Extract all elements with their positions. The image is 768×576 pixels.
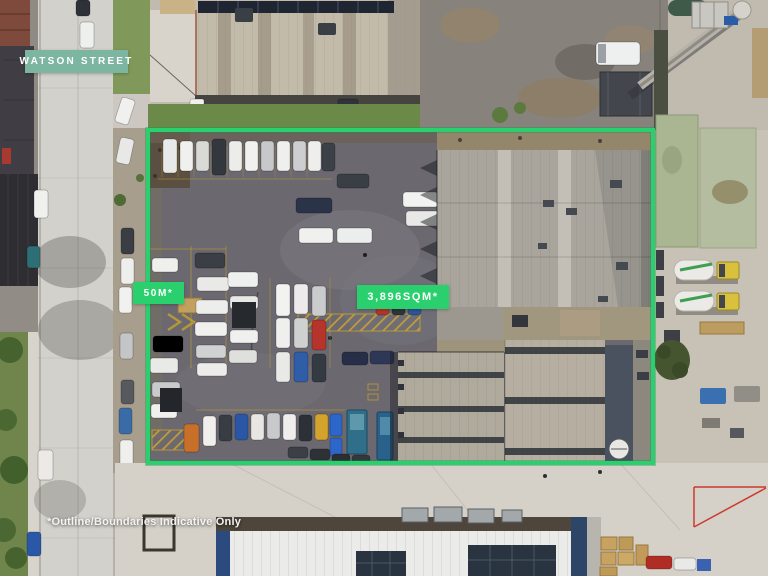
watson-street-road [34,0,122,576]
aerial-photo-canvas: WATSON STREET 50M* 3,896SQM* *Outline/Bo… [0,0,768,576]
street-name-badge: WATSON STREET [25,50,128,73]
concrete-mixer-truck [674,260,739,284]
machinery [700,388,726,404]
land-area-badge: 3,896SQM* [357,285,449,309]
settling-pond [656,115,698,247]
concrete-mixer-truck [674,291,739,315]
blue-wall [216,531,230,576]
south-neighbour-building [216,507,601,576]
far-left-lots [0,0,40,576]
disclaimer-text: *Outline/Boundaries Indicative Only [47,516,241,528]
solar-panels [198,1,394,13]
frontage-dimension-badge: 50M* [133,282,184,304]
east-yard [653,115,768,463]
